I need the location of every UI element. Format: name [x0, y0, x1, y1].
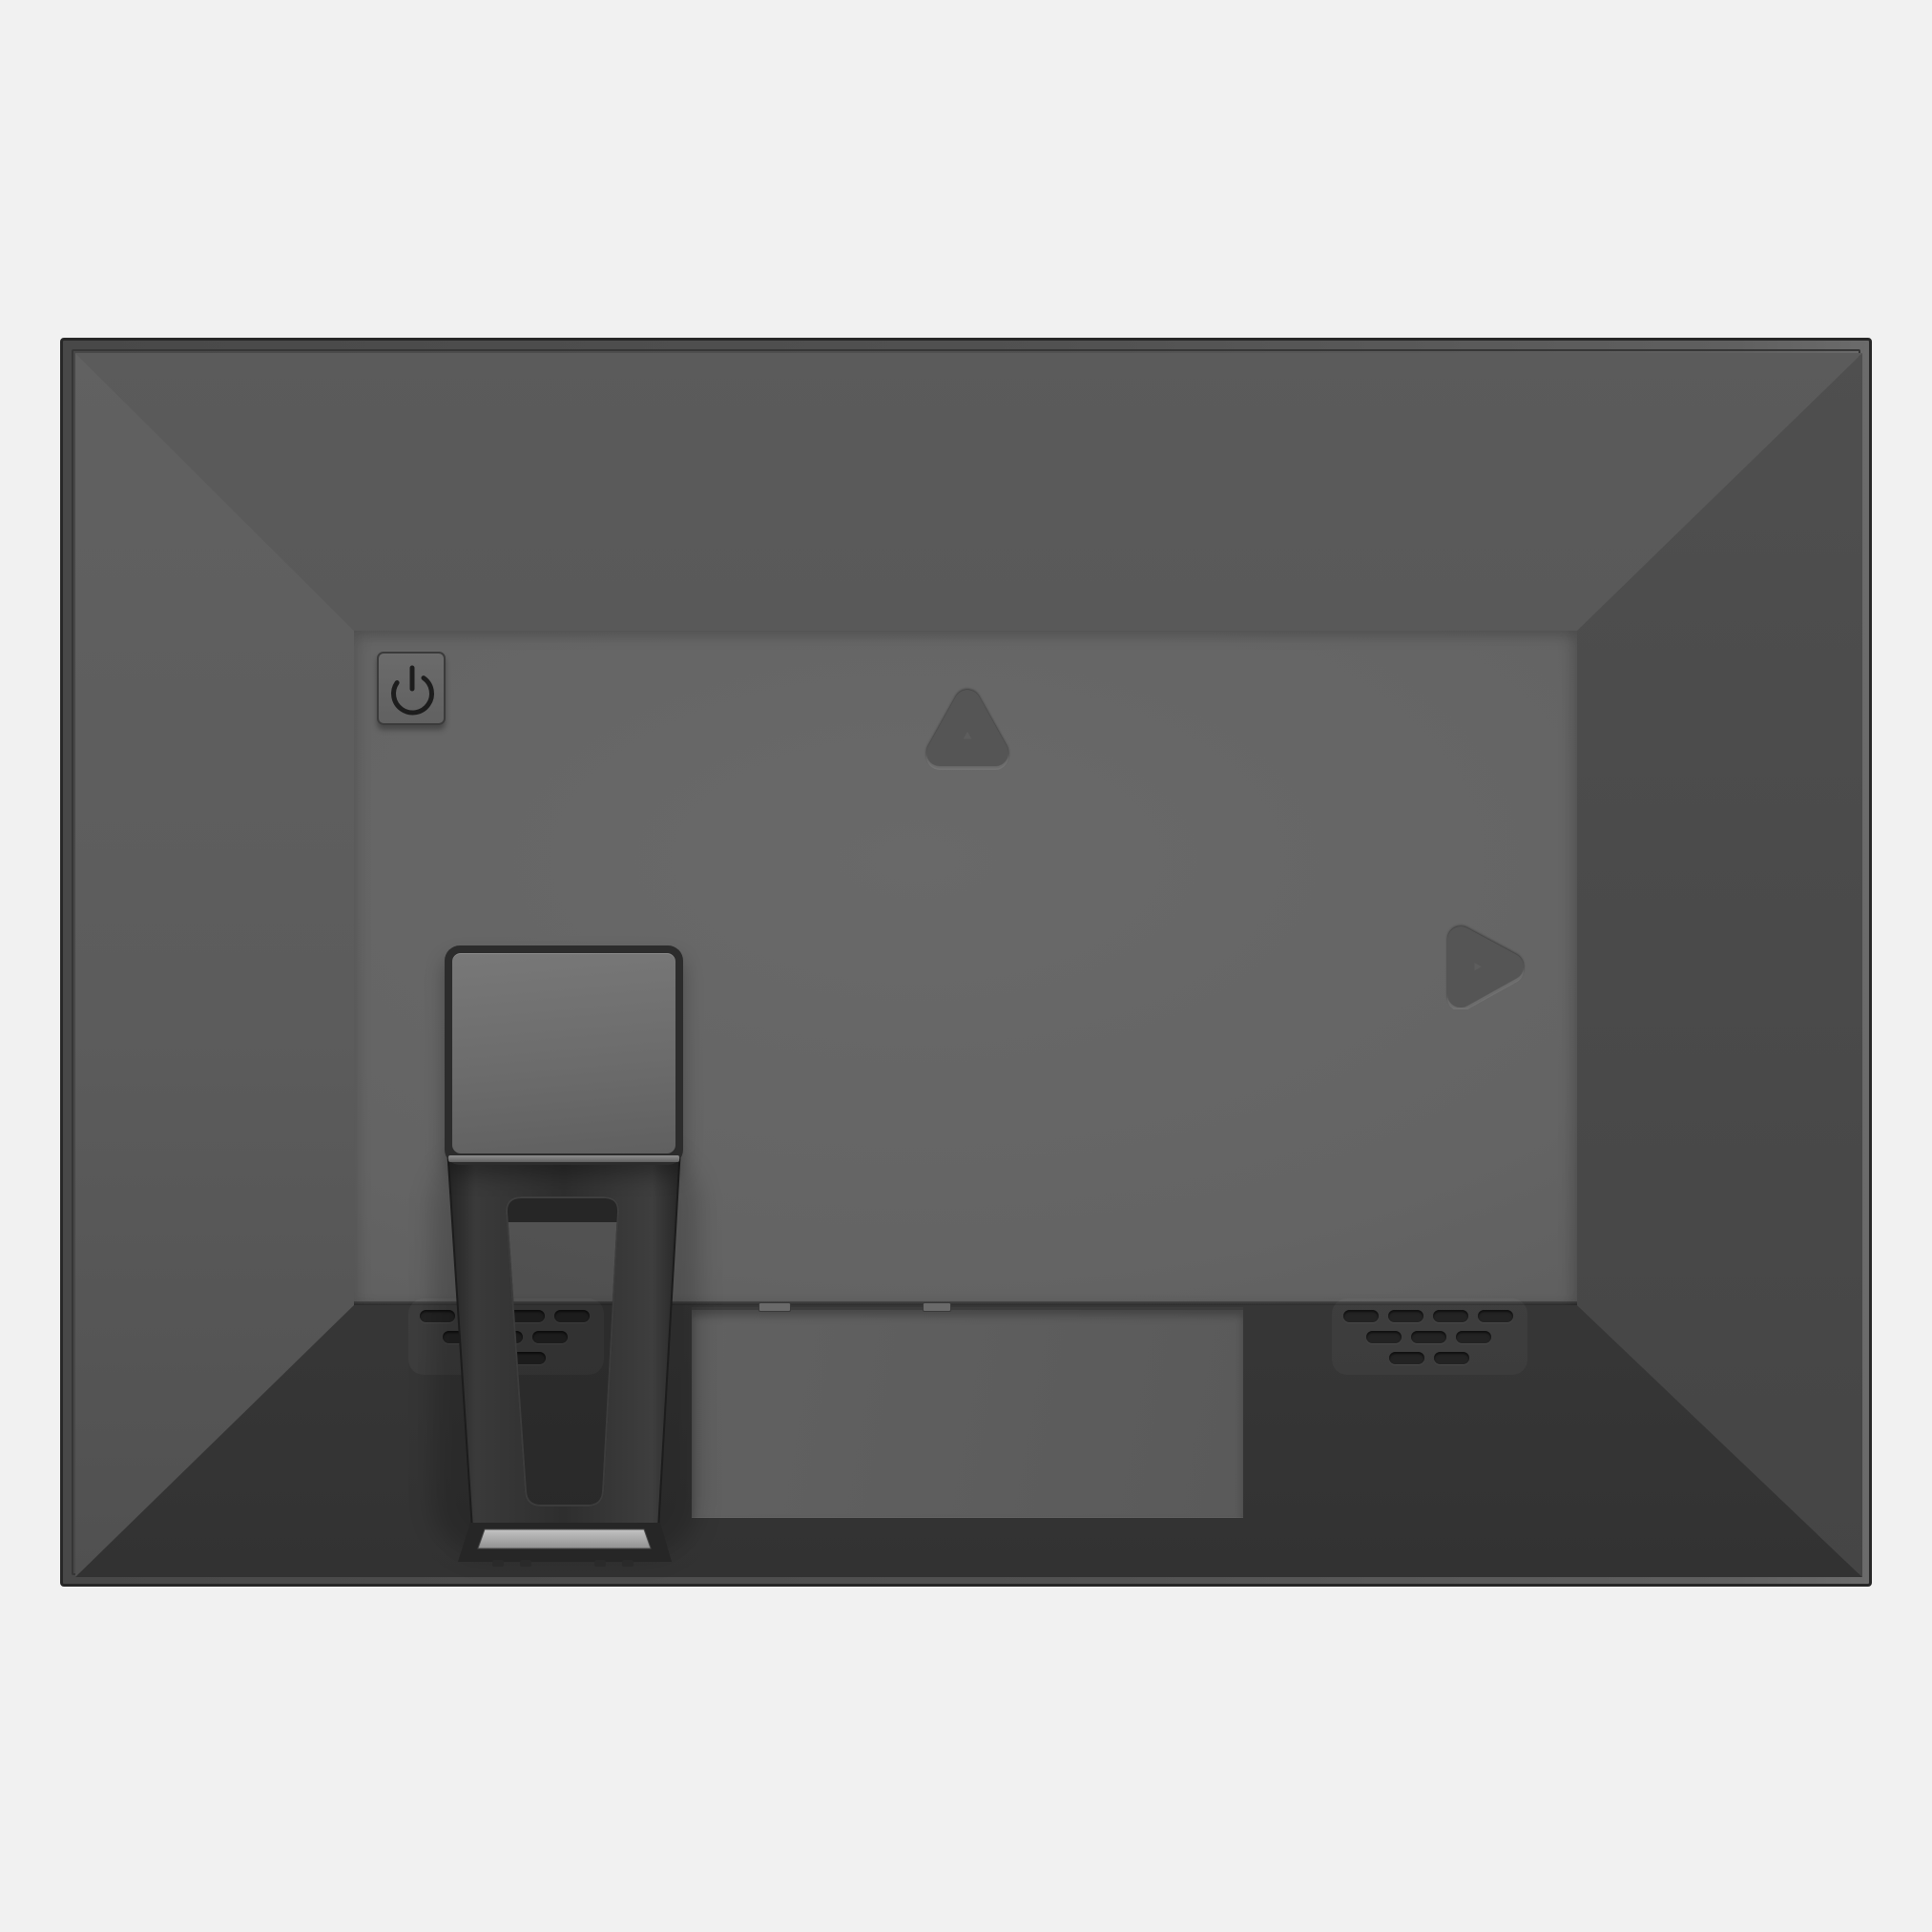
latch-slot — [923, 1302, 951, 1312]
latch-slot — [758, 1302, 791, 1312]
monitor-rear — [60, 338, 1872, 1587]
vent-hole — [1478, 1310, 1513, 1322]
vent-hole — [1434, 1352, 1469, 1364]
vent-hole — [1456, 1331, 1491, 1343]
vent-hole — [1389, 1352, 1424, 1364]
connector-recess — [692, 1307, 1243, 1518]
power-button[interactable] — [377, 652, 446, 725]
vent-hole — [1366, 1331, 1402, 1343]
stand-slot — [507, 1197, 618, 1506]
stand — [423, 1129, 709, 1577]
vent-hole — [1433, 1310, 1468, 1322]
vent-hole — [1343, 1310, 1379, 1322]
nav-triangle-right-icon — [1445, 926, 1527, 1008]
stand-plate-lip — [448, 1155, 679, 1162]
vent-cluster-right — [1332, 1298, 1527, 1375]
stand-slot-inner-wall — [507, 1197, 618, 1222]
foot-pad — [594, 1560, 606, 1567]
stand-mount-plate — [445, 945, 683, 1165]
foot-pad — [622, 1560, 634, 1567]
stage — [0, 0, 1932, 1932]
stand-foot-top — [478, 1529, 651, 1548]
power-icon — [379, 654, 447, 727]
foot-pad — [520, 1560, 531, 1567]
vent-hole — [1411, 1331, 1446, 1343]
foot-pad — [492, 1560, 504, 1567]
vent-hole — [1388, 1310, 1423, 1322]
wall-mount-triangle-up-icon — [925, 685, 1009, 771]
